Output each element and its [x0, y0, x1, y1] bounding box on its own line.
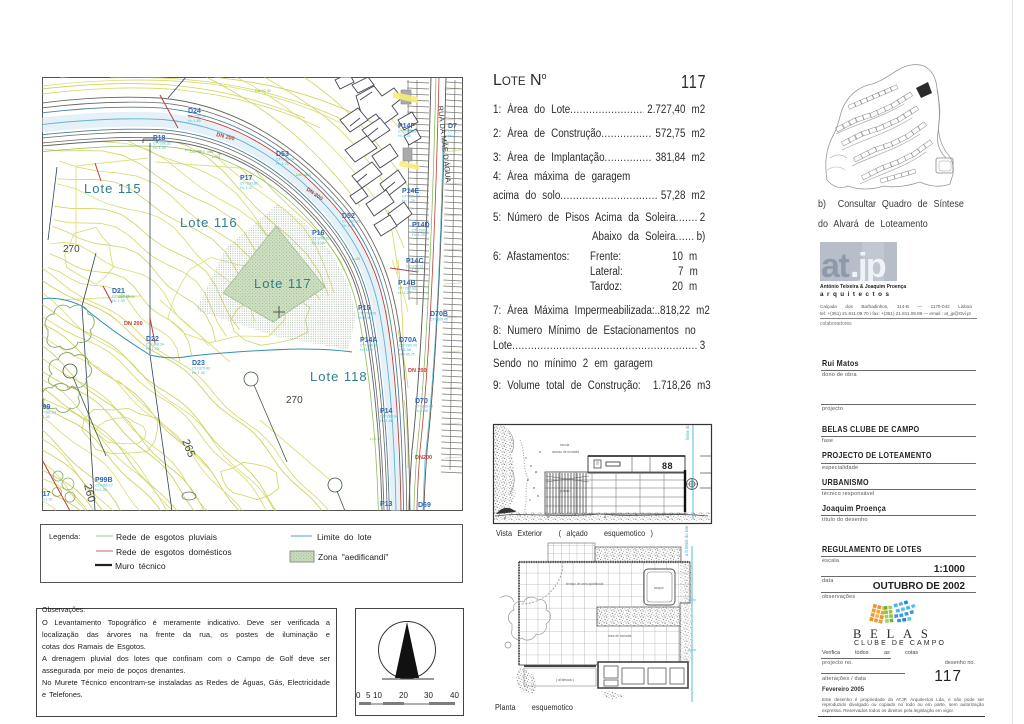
svg-text:DN 200: DN 200 — [408, 368, 427, 374]
svg-text:D69: D69 — [418, 502, 431, 509]
svg-text:P13: P13 — [380, 501, 393, 508]
svg-text:CT=2...: CT=2... — [448, 130, 460, 134]
svg-text:H= 1.80: H= 1.80 — [188, 119, 201, 123]
svg-text:270: 270 — [63, 244, 80, 255]
svg-text:H= 1.16: H= 1.16 — [406, 269, 419, 273]
svg-text:C=1.30: C=1.30 — [380, 517, 392, 521]
svg-text:limite do lote: limite do lote — [685, 416, 690, 440]
svg-text:H= 1.20: H= 1.20 — [412, 233, 425, 237]
svg-text:CT=292.30: CT=292.30 — [188, 115, 206, 119]
svg-text:CT=361.14: CT=361.14 — [38, 411, 56, 415]
svg-text:H= 1.70: H= 1.70 — [146, 347, 159, 351]
svg-text:CT=289.40: CT=289.40 — [430, 318, 448, 322]
svg-text:terraço de area ajardinada: terraço de area ajardinada — [566, 582, 604, 586]
svg-text:Dd= 34.95: Dd= 34.95 — [118, 295, 135, 299]
svg-text:270: 270 — [286, 395, 303, 406]
svg-text:H=1.38: H=1.38 — [399, 348, 411, 352]
svg-text:CT=291.43: CT=291.43 — [342, 220, 360, 224]
svg-text:( al timoca ): ( al timoca ) — [556, 678, 574, 682]
svg-text:CT=291.13: CT=291.13 — [402, 195, 420, 199]
svg-text:CT=290.05: CT=290.05 — [358, 312, 376, 316]
svg-text:20: 20 — [399, 691, 408, 700]
svg-text:30: 30 — [424, 691, 433, 700]
svg-text:88: 88 — [662, 461, 673, 471]
svg-text:40: 40 — [450, 691, 459, 700]
svg-text:Dd=62.30: Dd=62.30 — [255, 89, 271, 93]
svg-text:H= 1.25: H= 1.25 — [398, 291, 411, 295]
svg-text:DN200: DN200 — [415, 455, 432, 461]
svg-text:CT=370.43: CT=370.43 — [192, 367, 210, 371]
svg-text:5: 5 — [366, 691, 371, 700]
svg-text:H= 1.30: H= 1.30 — [398, 134, 411, 138]
svg-text:CT=289.43: CT=289.43 — [415, 405, 433, 409]
svg-text:Dd= 48.3: Dd= 48.3 — [296, 173, 311, 177]
svg-text:10: 10 — [373, 691, 382, 700]
svg-text:acesso de moradia: acesso de moradia — [552, 450, 579, 454]
svg-text:H= 1.37: H= 1.37 — [240, 186, 253, 190]
svg-text:H= 1.30: H= 1.30 — [192, 371, 205, 375]
svg-text:CT=293.81: CT=293.81 — [240, 182, 258, 186]
svg-text:H= 1.30: H= 1.30 — [112, 299, 125, 303]
svg-text:L=34: L=34 — [212, 155, 220, 159]
svg-text:CT=290.1: CT=290.1 — [412, 229, 428, 233]
svg-text:Lote 115: Lote 115 — [84, 181, 142, 196]
svg-text:DN=1.10: DN=1.10 — [38, 498, 52, 502]
svg-text:portao: portao — [560, 489, 570, 493]
svg-text:H= 1.25: H= 1.25 — [402, 199, 415, 203]
svg-text:CT=296.32: CT=296.32 — [153, 142, 171, 146]
svg-text:L=1.30: L=1.30 — [370, 437, 381, 441]
svg-text:CT=291.03: CT=291.03 — [398, 130, 416, 134]
svg-text:CT=289.94: CT=289.94 — [360, 344, 378, 348]
svg-text:CT=289.34: CT=289.34 — [399, 344, 417, 348]
svg-text:0: 0 — [356, 691, 361, 700]
svg-text:L=30: L=30 — [352, 257, 360, 261]
svg-text:at: at — [821, 247, 849, 285]
svg-text:CT=368.34: CT=368.34 — [146, 343, 164, 347]
svg-text:CT=293.24: CT=293.24 — [276, 158, 294, 162]
svg-text:Lote 118: Lote 118 — [310, 369, 368, 384]
svg-text:H= 1.56: H= 1.56 — [415, 409, 428, 413]
svg-text:H= 1.30: H= 1.30 — [360, 348, 373, 352]
svg-text:Lote 116: Lote 116 — [180, 215, 238, 230]
svg-text:H= 1.30: H= 1.30 — [358, 316, 371, 320]
svg-text:H= 1.45: H= 1.45 — [312, 241, 325, 245]
svg-text:H= 1.30: H= 1.30 — [153, 146, 166, 150]
svg-text:CT=291.11: CT=291.11 — [406, 265, 424, 269]
svg-text:H= 1.75: H= 1.75 — [276, 162, 289, 166]
svg-text:CT=292.62: CT=292.62 — [312, 237, 330, 241]
svg-text:CT=290.63: CT=290.63 — [398, 287, 416, 291]
svg-text:tanque: tanque — [654, 586, 664, 590]
svg-text:.jp: .jp — [850, 247, 886, 285]
svg-text:CT=360.17: CT=360.17 — [95, 484, 113, 488]
svg-text:H= 1.35: H= 1.35 — [342, 224, 355, 228]
svg-text:Lote 117: Lote 117 — [254, 276, 312, 291]
svg-text:H= 1.56: H= 1.56 — [380, 419, 393, 423]
svg-text:H=1.30: H=1.30 — [95, 488, 107, 492]
svg-text:DN 200: DN 200 — [124, 321, 143, 327]
svg-text:Dd=30.75: Dd=30.75 — [399, 353, 415, 357]
svg-text:a b limite do lote: a b limite do lote — [684, 525, 689, 556]
svg-text:CT=289.04: CT=289.04 — [380, 415, 398, 419]
svg-text:escola: escola — [560, 443, 569, 447]
svg-text:área de moradia: área de moradia — [608, 634, 631, 638]
svg-text:H=1.30: H=1.30 — [38, 415, 50, 419]
